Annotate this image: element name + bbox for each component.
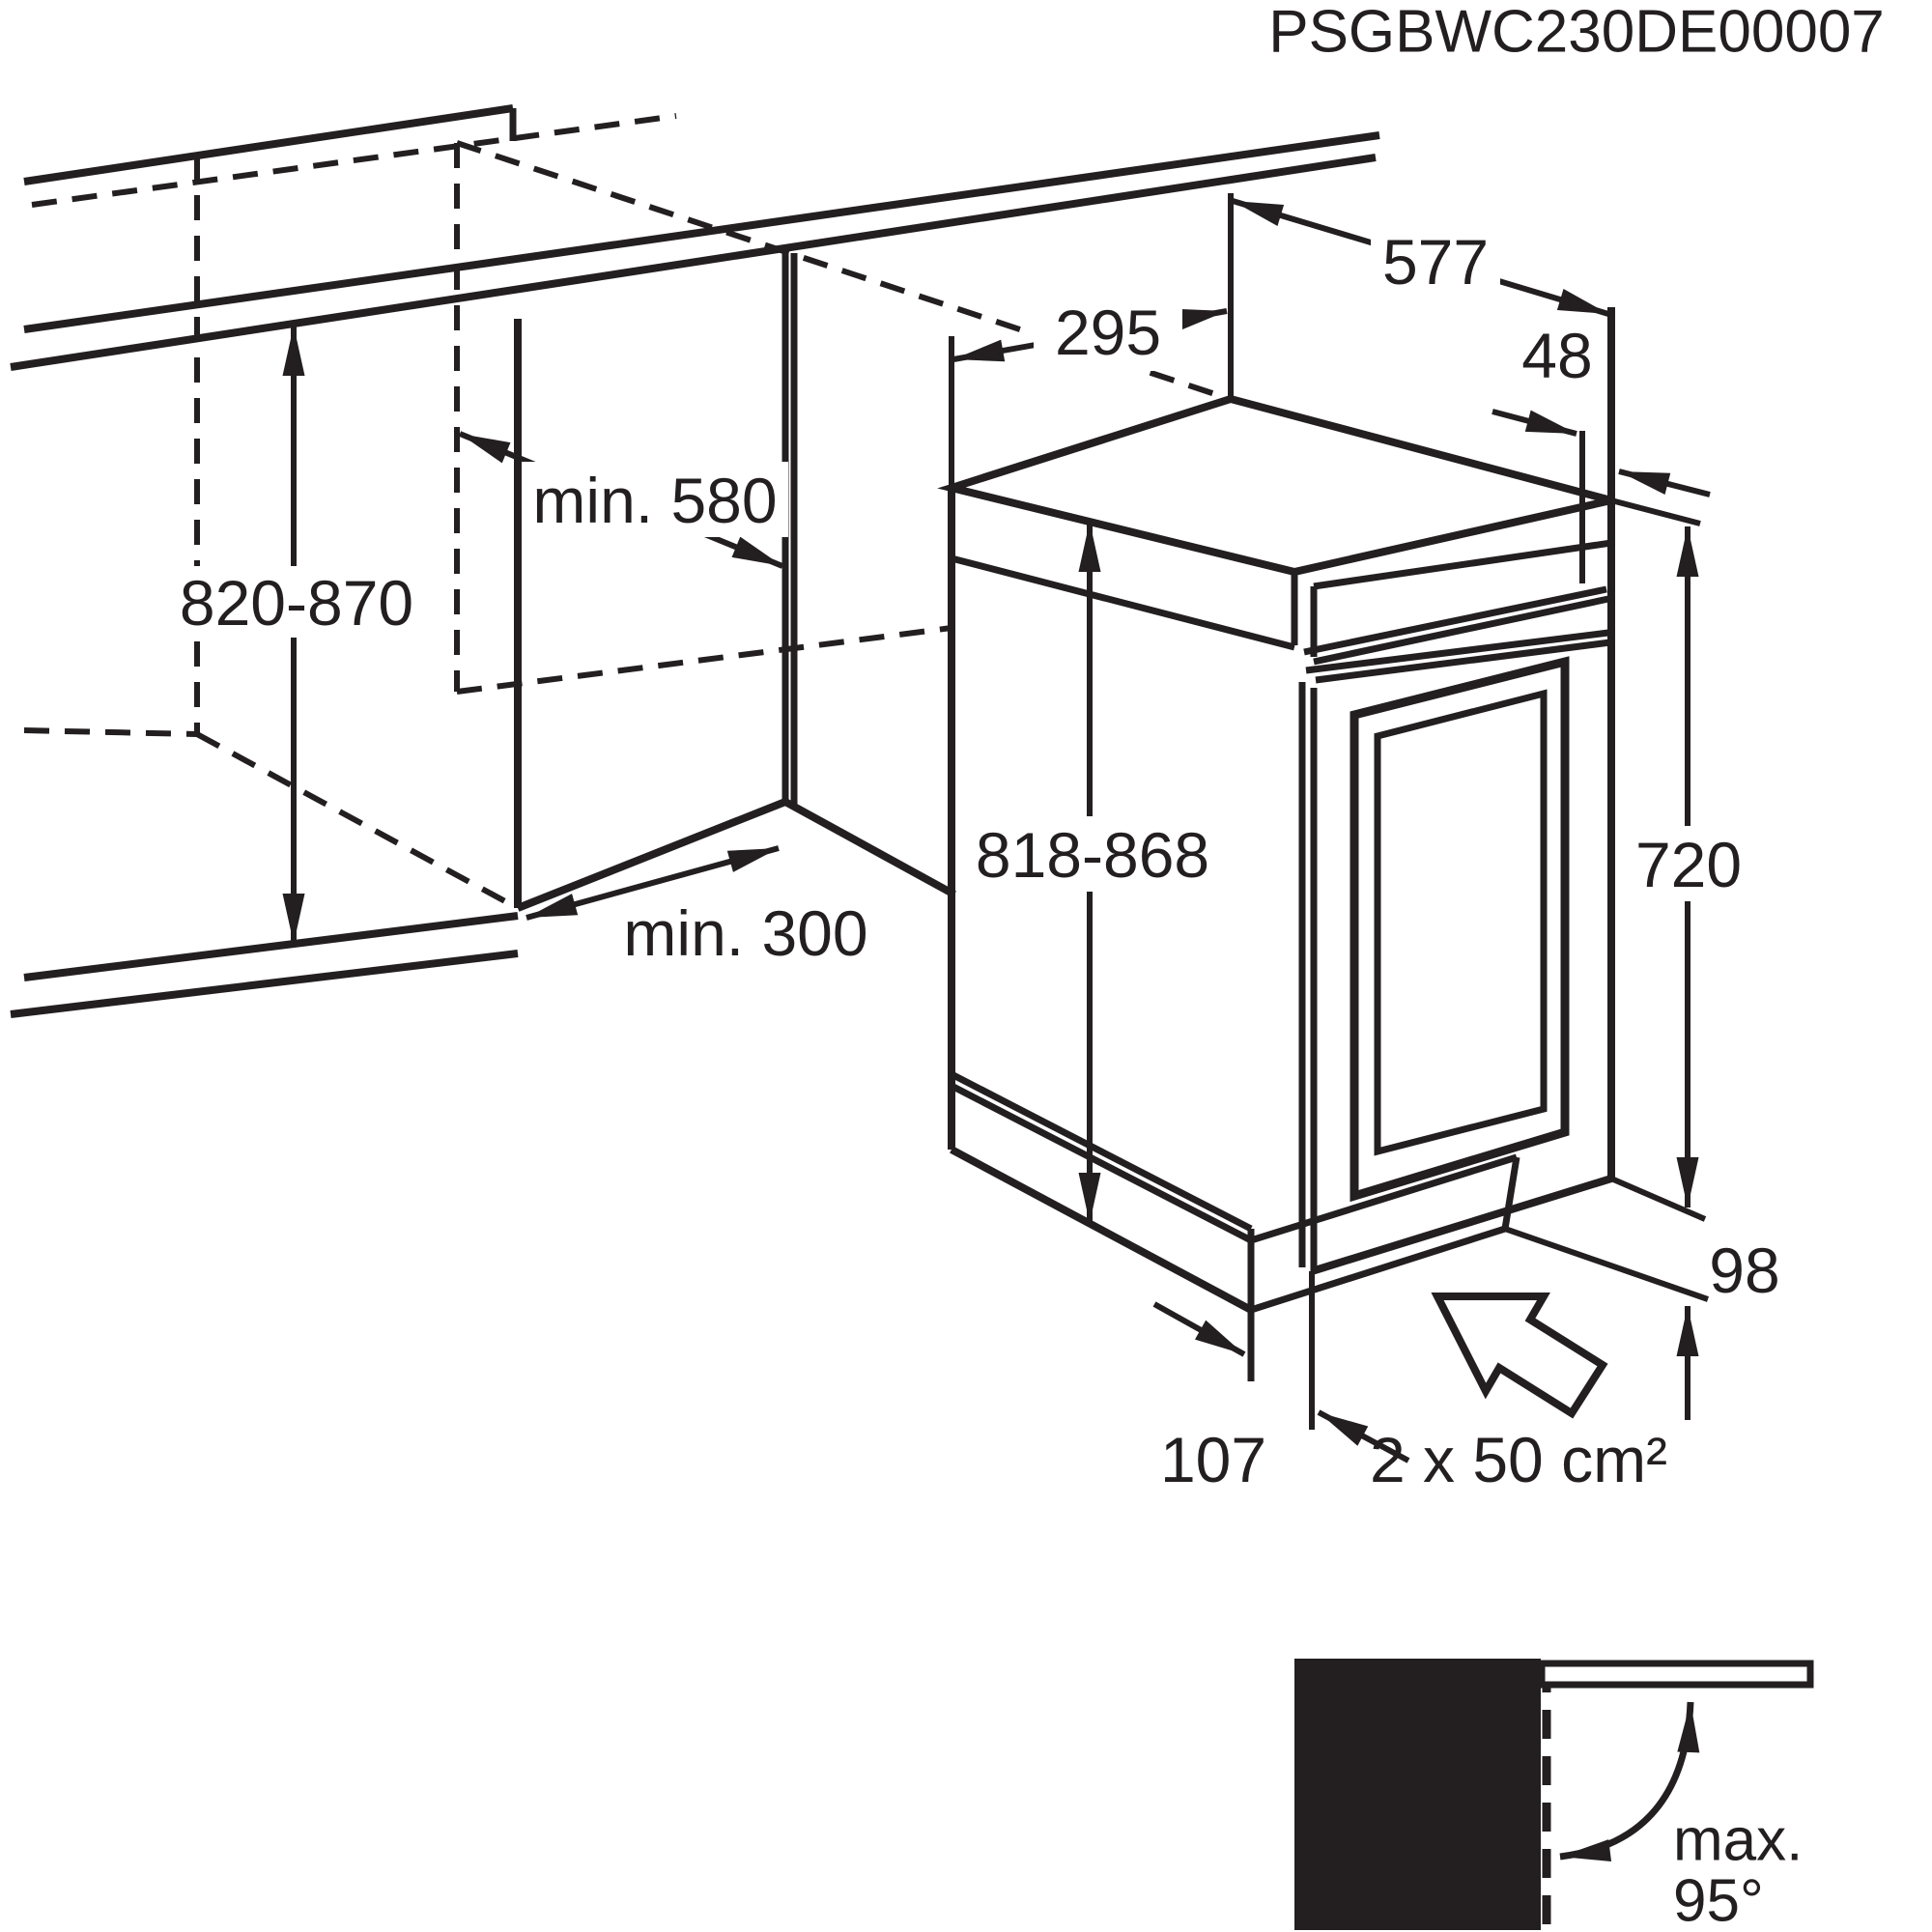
cabinet-bottom-hidden-edge: [24, 730, 197, 734]
technical-diagram-page: PSGBWC230DE00007 577 295 48 min. 580 820…: [0, 0, 1932, 1932]
model-code-label: PSGBWC230DE00007: [1268, 0, 1885, 66]
floor-reference-line: [1505, 1229, 1708, 1299]
floor-edge-to-appliance: [785, 802, 954, 895]
dim-label-top-width: 577: [1382, 226, 1489, 298]
floor-front-edge-upper: [24, 916, 518, 978]
door-angle-label-value: 95°: [1673, 1868, 1764, 1932]
appliance-drawing: [952, 193, 1708, 1430]
top-slab-bottom-edge: [1314, 543, 1611, 586]
vent-direction-arrow-icon: [1437, 1296, 1603, 1413]
dim-label-door-height: 720: [1635, 829, 1742, 900]
side-panel-bottom-edge-2: [952, 1086, 1251, 1240]
door-angle-label-max: max.: [1673, 1807, 1803, 1874]
dim-label-top-depth: 295: [1055, 297, 1161, 368]
dim-label-plinth-height: 98: [1709, 1235, 1779, 1306]
door-glass-frame-inner: [1378, 694, 1544, 1151]
door-glass-frame-outer: [1354, 662, 1565, 1196]
dim-label-plinth-depth: 107: [1160, 1424, 1266, 1495]
door-open-position-bar: [1542, 1663, 1810, 1685]
installation-dimensions-drawing: PSGBWC230DE00007 577 295 48 min. 580 820…: [0, 0, 1932, 1932]
door-swing-arc: [1560, 1702, 1690, 1857]
plinth-depth-arrow-left: [1154, 1304, 1244, 1354]
cabinet-floor-hidden-diagonal: [197, 734, 514, 906]
gap-arrow-right: [1619, 471, 1710, 495]
cabinet-top-view: [1299, 1663, 1536, 1925]
appliance-floor-edge: [952, 1150, 1251, 1310]
dim-label-niche-height: 820-870: [180, 567, 413, 639]
floor-front-edge-lower: [11, 953, 518, 1014]
door-top-reference-line: [1611, 500, 1700, 524]
door-opening-angle-inset: max. 95°: [1299, 1663, 1810, 1932]
plinth-front-top-edge: [1251, 1157, 1517, 1240]
dim-label-appliance-height: 818-868: [976, 819, 1209, 891]
gap-arrow-left: [1492, 412, 1577, 434]
dim-label-niche-depth: min. 580: [532, 465, 777, 536]
counter-back-top-edge: [24, 108, 513, 182]
dim-label-niche-width: min. 300: [623, 897, 867, 969]
door-bottom-reference-line: [1611, 1179, 1705, 1219]
control-band-top-1: [1304, 589, 1606, 652]
side-panel-bottom-edge-1: [952, 1074, 1251, 1229]
niche-bottom-back-hidden-edge: [457, 628, 952, 692]
dim-label-top-gap: 48: [1521, 320, 1592, 391]
dim-label-vent-area: 2 x 50 cm²: [1370, 1424, 1667, 1495]
plinth-right-cap: [1505, 1157, 1517, 1229]
appliance-top-face: [952, 399, 1611, 572]
top-slab-side-line: [952, 558, 1294, 647]
